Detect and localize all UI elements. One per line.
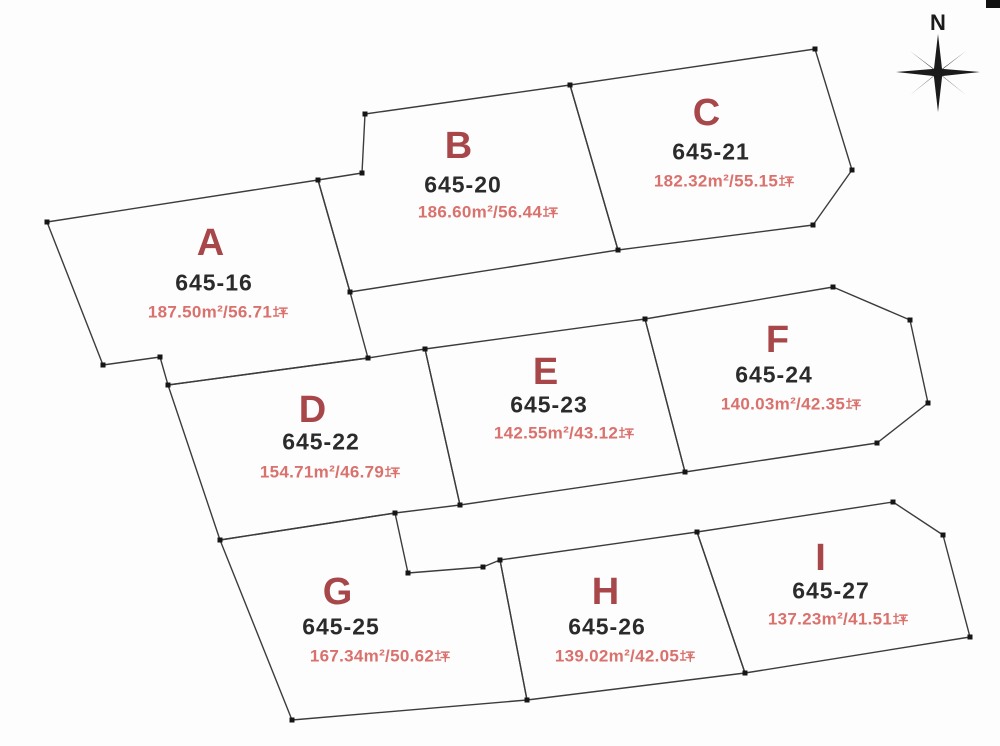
plot-D-lot-number: 645-22 xyxy=(282,431,360,454)
plot-E-lot-number: 645-23 xyxy=(510,394,588,417)
tsubo-unit-glyph xyxy=(619,425,634,441)
compass-rose-icon: N xyxy=(884,4,994,129)
tsubo-unit-glyph xyxy=(543,204,558,220)
plot-F-letter: F xyxy=(766,321,790,359)
plot-I-lot-number: 645-27 xyxy=(792,580,870,603)
plot-H-area: 139.02m²/42.05 xyxy=(555,648,695,665)
plot-F-area: 140.03m²/42.35 xyxy=(721,396,861,413)
tsubo-unit-glyph xyxy=(846,396,861,412)
tsubo-unit-glyph xyxy=(779,173,794,189)
compass-star xyxy=(896,34,980,112)
compass-north-label: N xyxy=(930,10,946,35)
plot-H-letter: H xyxy=(592,573,620,611)
plot-H-lot-number: 645-26 xyxy=(568,616,646,639)
plot-A-letter: A xyxy=(197,224,225,262)
plot-C-letter: C xyxy=(693,94,721,132)
plot-I-area: 137.23m²/41.51 xyxy=(768,611,908,628)
parcel-labels-layer: A645-16187.50m²/56.71B645-20186.60m²/56.… xyxy=(0,0,1000,746)
plot-B-lot-number: 645-20 xyxy=(424,174,502,197)
plot-D-letter: D xyxy=(299,391,327,429)
tsubo-unit-glyph xyxy=(435,648,450,664)
plot-B-area: 186.60m²/56.44 xyxy=(418,204,558,221)
plot-G-lot-number: 645-25 xyxy=(302,616,380,639)
plot-E-area: 142.55m²/43.12 xyxy=(494,425,634,442)
top-right-crop-fragment xyxy=(986,0,1000,8)
plot-F-lot-number: 645-24 xyxy=(735,364,813,387)
plot-I-letter: I xyxy=(815,539,827,577)
plot-A-area: 187.50m²/56.71 xyxy=(148,304,288,321)
plot-C-lot-number: 645-21 xyxy=(672,141,750,164)
plot-E-letter: E xyxy=(533,353,559,391)
plot-C-area: 182.32m²/55.15 xyxy=(654,173,794,190)
tsubo-unit-glyph xyxy=(680,648,695,664)
plot-A-lot-number: 645-16 xyxy=(175,272,253,295)
plot-G-letter: G xyxy=(323,573,354,611)
plot-D-area: 154.71m²/46.79 xyxy=(260,464,400,481)
land-plot-diagram: A645-16187.50m²/56.71B645-20186.60m²/56.… xyxy=(0,0,1000,746)
tsubo-unit-glyph xyxy=(273,304,288,320)
plot-B-letter: B xyxy=(445,127,473,165)
tsubo-unit-glyph xyxy=(385,464,400,480)
tsubo-unit-glyph xyxy=(893,611,908,627)
plot-G-area: 167.34m²/50.62 xyxy=(310,648,450,665)
